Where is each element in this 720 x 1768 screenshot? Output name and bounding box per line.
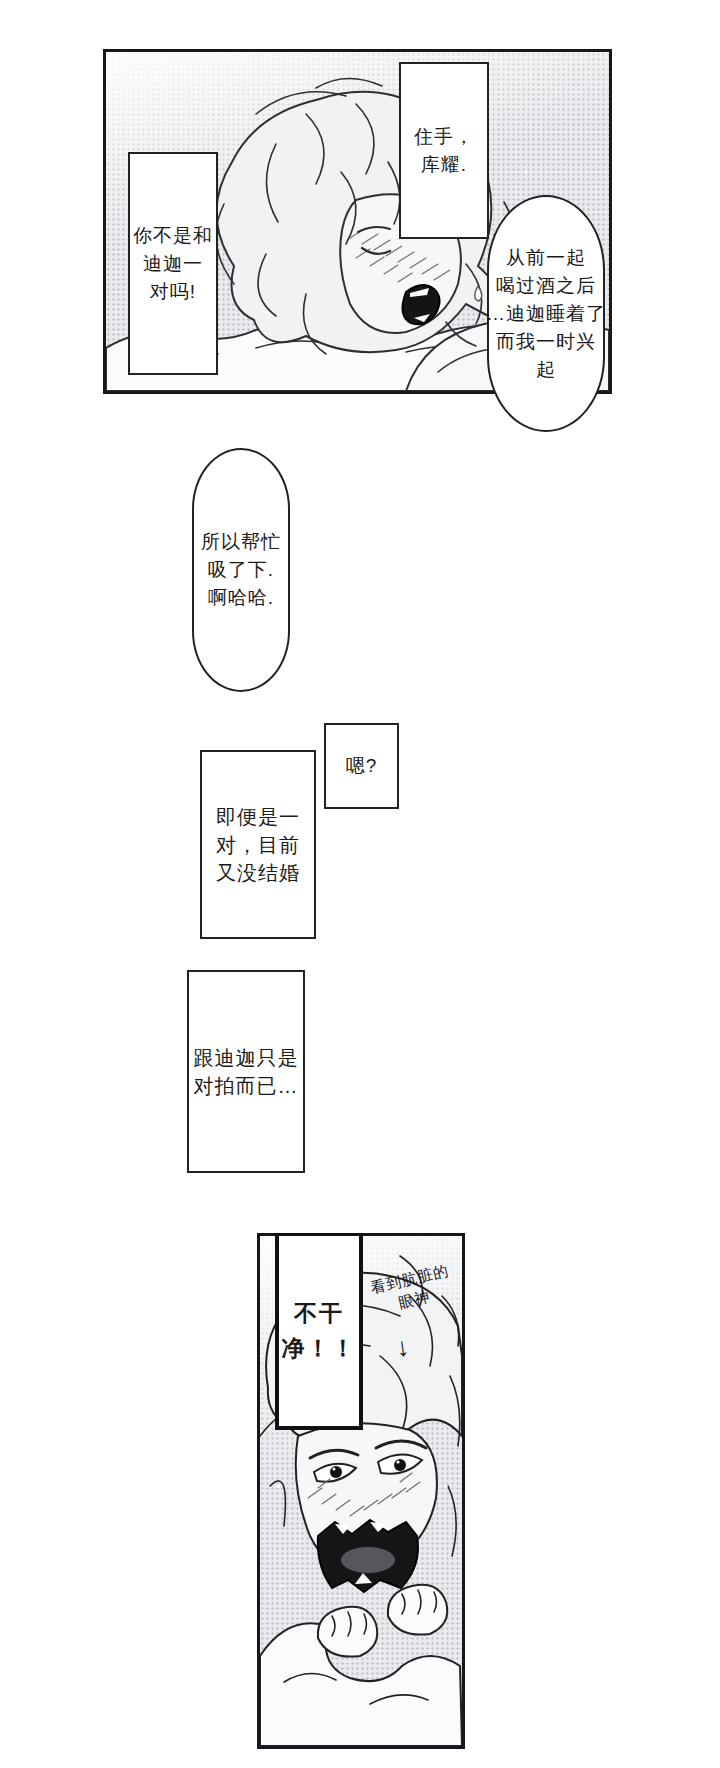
speech-line: 不干 — [294, 1296, 344, 1331]
speech-box-pair: 你不是和 迪迦一 对吗! — [128, 152, 218, 375]
speech-box-partner: 跟迪迦只是 对拍而已… — [187, 970, 305, 1173]
speech-line: 所以帮忙 — [201, 528, 281, 556]
speech-box-huh: 嗯? — [324, 723, 399, 809]
speech-line: 啊哈哈. — [208, 584, 274, 612]
speech-bubble-drink: 从前一起 喝过酒之后 …迪迦睡着了 而我一时兴 起 — [487, 195, 605, 432]
speech-line: 从前一起 — [506, 244, 586, 272]
speech-line: 起 — [536, 356, 556, 384]
speech-line: 对吗! — [150, 278, 196, 306]
speech-line: …迪迦睡着了 — [486, 300, 606, 328]
speech-line: 净！！ — [282, 1331, 357, 1366]
speech-line: 即便是一 — [216, 803, 300, 831]
speech-box-dirty: 不干 净！！ — [275, 1233, 363, 1430]
speech-line: 对，目前 — [216, 831, 300, 859]
bottom-panel: 不干 净！！ 看到肮脏的 眼神 ↓ — [257, 1233, 465, 1749]
speech-line: 住手， — [414, 123, 474, 151]
speech-line: 库耀. — [421, 151, 467, 179]
speech-line: 你不是和 — [133, 222, 213, 250]
speech-bubble-help: 所以帮忙 吸了下. 啊哈哈. — [192, 448, 290, 692]
speech-line: 又没结婚 — [216, 859, 300, 887]
speech-box-stop: 住手， 库耀. — [399, 62, 489, 239]
speech-line: 吸了下. — [208, 556, 274, 584]
speech-line: 迪迦一 — [143, 250, 203, 278]
speech-line: 对拍而已… — [194, 1072, 299, 1100]
speech-line: 跟迪迦只是 — [194, 1044, 299, 1072]
speech-box-married: 即便是一 对，目前 又没结婚 — [200, 750, 316, 939]
speech-line: 嗯? — [346, 752, 378, 780]
speech-line: 喝过酒之后 — [496, 272, 596, 300]
speech-line: 而我一时兴 — [496, 328, 596, 356]
